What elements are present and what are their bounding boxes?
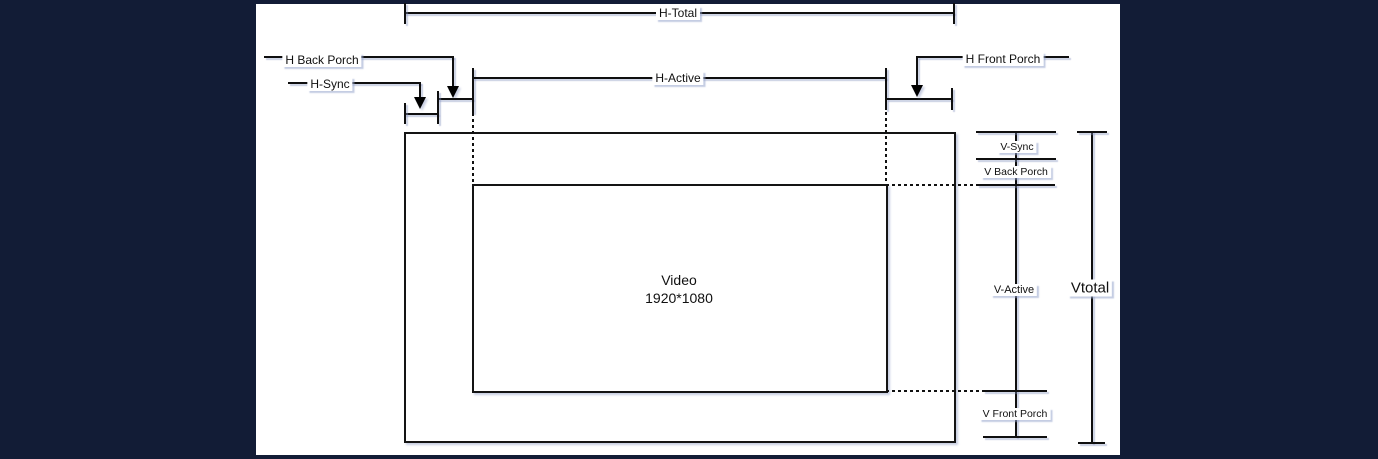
v-front-porch-bottom-tick [983,436,1047,438]
dashed-bottom-extension [886,390,983,392]
v-sync-label: V-Sync [997,141,1036,153]
h-active-end-tick [885,68,887,110]
h-active-label: H-Active [652,71,703,85]
h-front-porch-label: H Front Porch [963,52,1044,66]
h-front-porch-arrow-icon [911,85,923,97]
h-back-porch-label: H Back Porch [282,53,361,67]
vtotal-label: Vtotal [1068,280,1112,297]
h-front-porch-bracket [886,98,952,100]
h-back-porch-arrow-icon [447,86,459,98]
vtotal-top-tick [1077,131,1107,133]
h-sync-back-porch-shared-tick [437,91,439,124]
video-title: Video [661,272,697,288]
v-front-porch-label: V Front Porch [980,408,1051,420]
v-back-porch-label: V Back Porch [981,166,1051,178]
dashed-left-extension [472,113,474,184]
h-active-start-tick [472,68,474,113]
h-sync-label: H-Sync [307,77,352,91]
v-active-bottom-tick [983,390,1047,392]
h-front-porch-leader-stem [916,56,918,86]
h-sync-bracket [404,113,438,115]
dashed-right-extension [885,112,887,184]
video-resolution: 1920*1080 [645,290,713,306]
h-total-right-tick [953,3,955,24]
h-sync-bracket-left-tick [404,103,406,124]
h-sync-leader-stem [419,82,421,98]
h-sync-arrow-icon [414,97,426,109]
h-back-porch-bracket [437,98,473,100]
v-sync-bottom-tick [976,158,1056,160]
v-active-label: V-Active [991,284,1037,296]
dashed-top-extension [886,184,978,186]
h-total-left-tick [404,3,406,24]
v-back-porch-bottom-tick [977,184,1055,186]
video-timing-diagram: H-Total H Back Porch H-Sync H-Active H F… [0,0,1378,459]
h-back-porch-leader-stem [452,56,454,87]
h-front-porch-right-tick [951,88,953,110]
v-sync-top-tick [976,131,1056,133]
video-label: Video 1920*1080 [642,271,716,307]
h-total-label: H-Total [656,6,700,20]
vtotal-bottom-tick [1078,442,1105,444]
